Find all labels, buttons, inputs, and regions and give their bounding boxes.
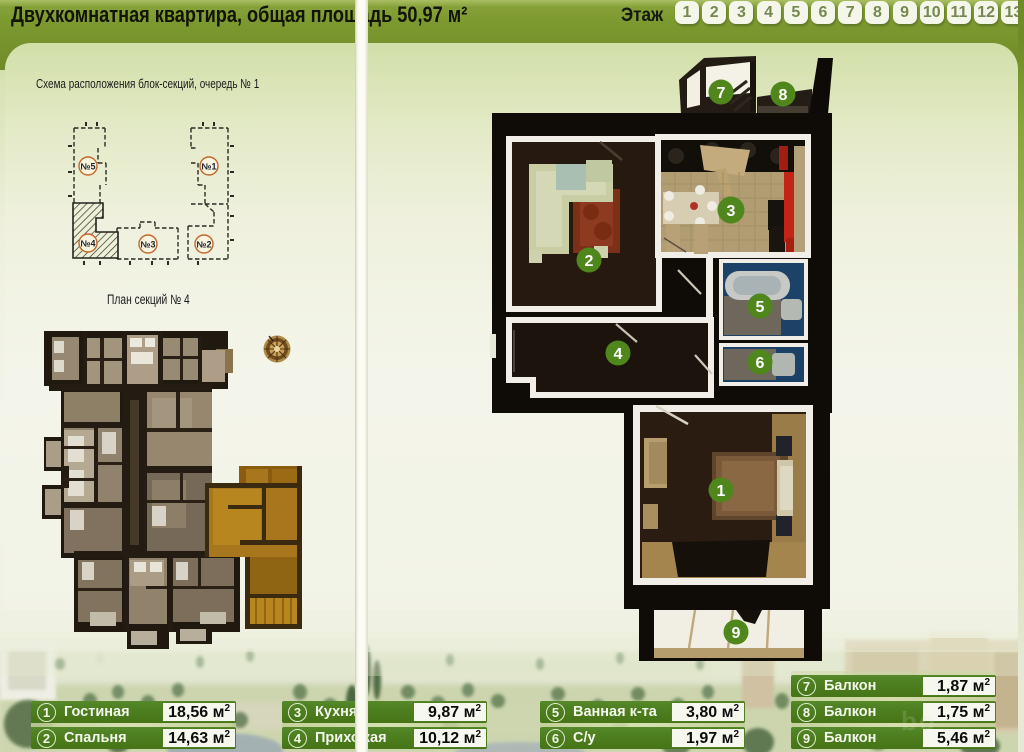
svg-text:5: 5 [756, 299, 765, 316]
svg-text:9: 9 [732, 625, 741, 642]
svg-text:8: 8 [779, 87, 788, 104]
svg-text:1: 1 [717, 483, 726, 500]
svg-text:№3: №3 [140, 240, 155, 250]
svg-text:№1: №1 [201, 162, 216, 172]
svg-text:4: 4 [614, 346, 623, 363]
svg-text:№4: №4 [80, 239, 95, 249]
svg-text:№5: №5 [80, 162, 95, 172]
svg-text:2: 2 [585, 253, 594, 270]
svg-text:6: 6 [756, 355, 765, 372]
svg-text:3: 3 [727, 203, 736, 220]
svg-text:7: 7 [717, 85, 726, 102]
svg-text:№2: №2 [196, 240, 211, 250]
